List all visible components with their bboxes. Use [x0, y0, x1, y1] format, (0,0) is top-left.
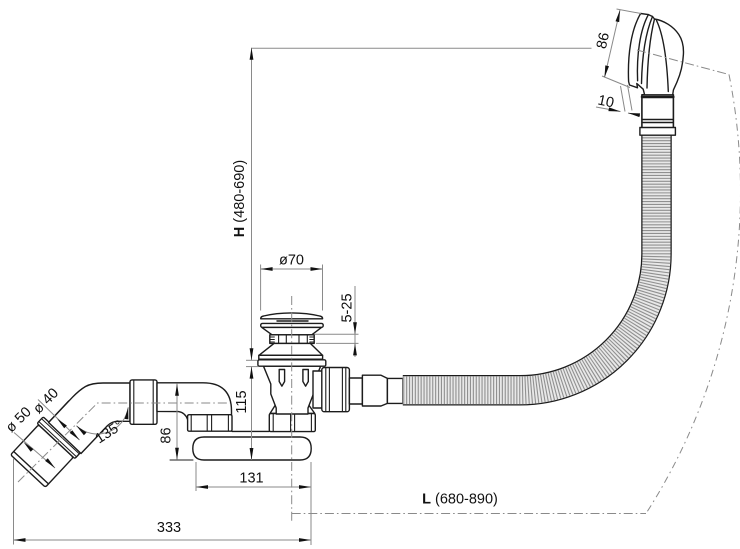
svg-text:5-25: 5-25 — [340, 293, 356, 322]
svg-text:10: 10 — [596, 92, 615, 111]
svg-text:L (680-890): L (680-890) — [422, 492, 498, 508]
svg-text:86: 86 — [159, 427, 175, 443]
svg-text:333: 333 — [157, 520, 181, 536]
svg-text:131: 131 — [239, 471, 263, 487]
svg-text:H (480-690): H (480-690) — [232, 160, 248, 237]
svg-text:115: 115 — [234, 390, 250, 413]
svg-text:ø70: ø70 — [279, 253, 304, 269]
